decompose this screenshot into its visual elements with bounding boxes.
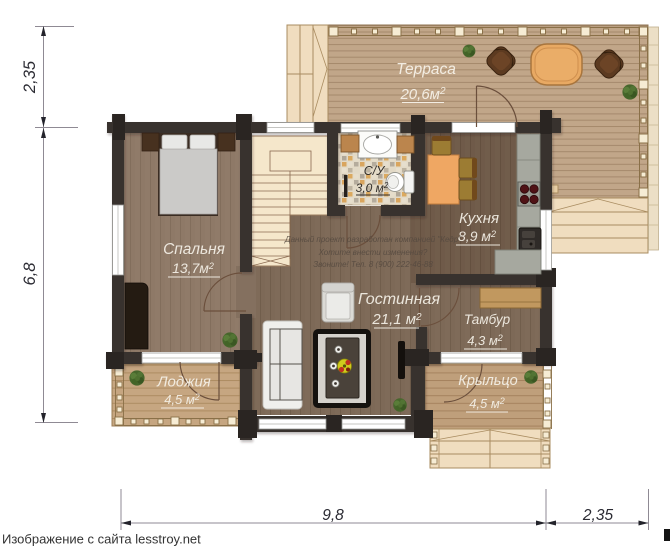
svg-text:Крыльцо: Крыльцо: [458, 373, 517, 389]
svg-text:20,6м2: 20,6м2: [399, 86, 445, 103]
svg-text:2,35: 2,35: [582, 507, 614, 524]
svg-text:Терраса: Терраса: [396, 61, 456, 78]
svg-text:Спальня: Спальня: [163, 241, 225, 258]
svg-text:Лоджия: Лоджия: [156, 374, 211, 391]
svg-text:8,9 м2: 8,9 м2: [458, 228, 496, 244]
svg-text:Гостинная: Гостинная: [358, 291, 440, 308]
svg-text:Изображение с сайта lesstroy.n: Изображение с сайта lesstroy.net: [2, 532, 201, 547]
svg-text:21,1 м2: 21,1 м2: [371, 311, 422, 328]
svg-text:4,5 м2: 4,5 м2: [469, 396, 505, 411]
svg-text:4,5 м2: 4,5 м2: [164, 392, 200, 407]
svg-text:Данный проект разработан компа: Данный проект разработан компанией "Кедр…: [284, 235, 462, 244]
svg-text:Тамбур: Тамбур: [464, 312, 511, 327]
svg-text:2,35: 2,35: [21, 60, 39, 94]
svg-text:6,8: 6,8: [21, 262, 39, 286]
svg-text:Кухня: Кухня: [459, 210, 499, 227]
svg-text:9,8: 9,8: [322, 507, 344, 524]
svg-text:С/У: С/У: [364, 164, 387, 178]
svg-text:4,3 м2: 4,3 м2: [467, 333, 503, 348]
svg-text:Звоните! Тел. 8 (900) 222-46-8: Звоните! Тел. 8 (900) 222-46-88: [313, 260, 433, 269]
svg-text:Хотите внести изменения?: Хотите внести изменения?: [318, 248, 428, 257]
svg-text:13,7м2: 13,7м2: [172, 260, 214, 276]
